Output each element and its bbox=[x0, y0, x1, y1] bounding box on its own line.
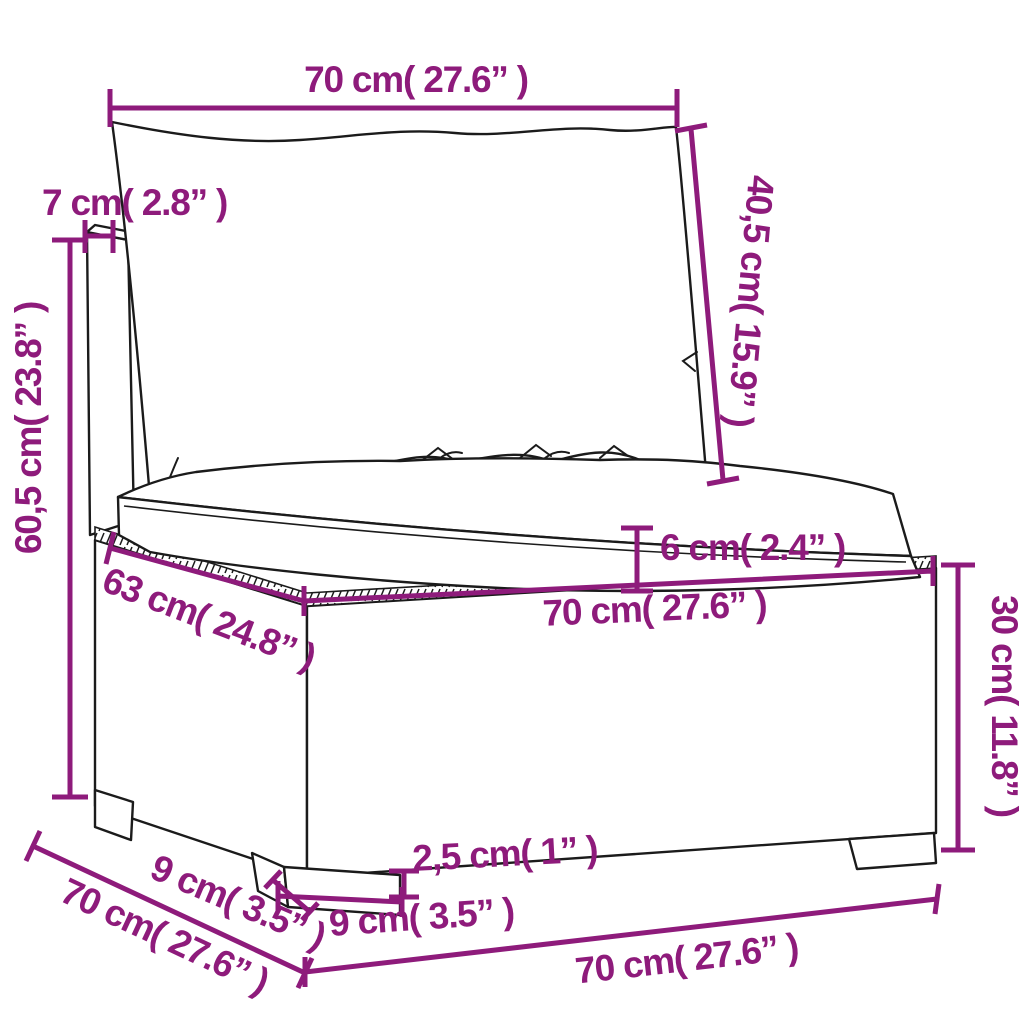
dim-back-width-top: 70 cm( 27.6” ) bbox=[110, 59, 677, 127]
dim-overall-height-label: 60,5 cm( 23.8” ) bbox=[8, 302, 49, 554]
dim-leg-height-label: 2,5 cm( 1” ) bbox=[411, 828, 598, 879]
dim-base-height: 30 cm( 11.8” ) bbox=[941, 565, 1024, 850]
diagram-canvas: 70 cm( 27.6” ) 7 cm( 2.8” ) 40,5 cm( 15.… bbox=[0, 0, 1024, 1024]
dim-base-height-label: 30 cm( 11.8” ) bbox=[984, 595, 1024, 817]
sofa-dimension-diagram: 70 cm( 27.6” ) 7 cm( 2.8” ) 40,5 cm( 15.… bbox=[0, 0, 1024, 1024]
dim-back-width-top-label: 70 cm( 27.6” ) bbox=[304, 59, 528, 100]
sofa-illustration bbox=[87, 122, 936, 915]
dim-overall-height-line bbox=[52, 240, 88, 797]
dim-seat-cushion-thickness-label: 6 cm( 2.4” ) bbox=[660, 527, 845, 568]
dim-leg-height: 2,5 cm( 1” ) bbox=[389, 828, 598, 897]
seat-cushion bbox=[118, 445, 920, 591]
front-right-leg bbox=[849, 833, 936, 869]
back-post-front-face bbox=[87, 232, 134, 535]
dim-back-cushion-height-label: 40,5 cm( 15.9” ) bbox=[719, 174, 782, 429]
dim-back-post-depth-label: 7 cm( 2.8” ) bbox=[42, 182, 227, 223]
dim-overall-height: 60,5 cm( 23.8” ) bbox=[8, 240, 88, 797]
dim-base-height-line bbox=[941, 565, 975, 850]
